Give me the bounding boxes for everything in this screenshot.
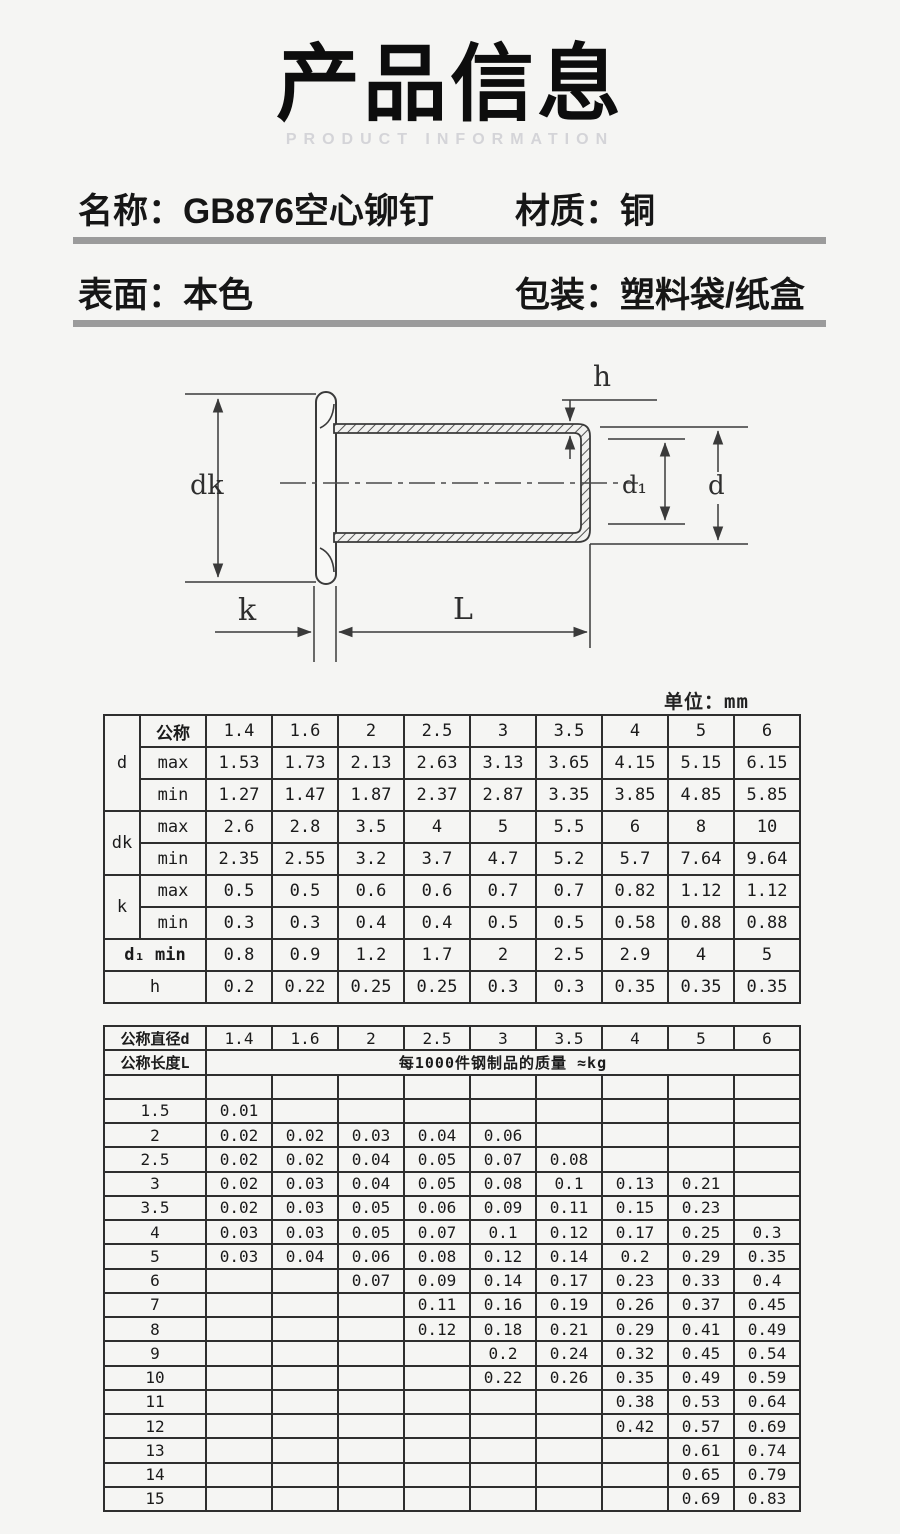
dim-value-cell: 1.27 (206, 779, 272, 811)
weight-length-cell: 2.5 (104, 1147, 206, 1171)
weight-value-cell (404, 1099, 470, 1123)
weight-value-cell: 0.13 (602, 1172, 668, 1196)
dim-value-cell: 0.58 (602, 907, 668, 939)
dim-value-cell: 0.5 (272, 875, 338, 907)
weight-value-cell (536, 1390, 602, 1414)
rivet-outline (316, 392, 590, 584)
weight-value-cell: 0.49 (668, 1366, 734, 1390)
weight-value-cell (338, 1293, 404, 1317)
weight-value-cell: 0.23 (668, 1196, 734, 1220)
weight-value-cell: 0.35 (734, 1244, 800, 1268)
dim-value-cell: 4.85 (668, 779, 734, 811)
dim-value-cell: 0.6 (404, 875, 470, 907)
weight-value-cell: 0.22 (470, 1366, 536, 1390)
weight-value-cell (206, 1414, 272, 1438)
dim-label-h: h (593, 360, 611, 393)
dim-value-cell: 0.2 (206, 971, 272, 1003)
dim-value-cell: 5 (734, 939, 800, 971)
weight-value-cell (734, 1075, 800, 1099)
dim-label-d1: d₁ (622, 471, 647, 499)
weight-value-cell: 0.25 (668, 1220, 734, 1244)
dim-sub-head: min (140, 779, 206, 811)
weight-value-cell: 0.1 (470, 1220, 536, 1244)
table-row: 80.120.180.210.290.410.49 (104, 1317, 800, 1341)
weight-value-cell (206, 1317, 272, 1341)
weight-value-cell (272, 1390, 338, 1414)
weight-value-cell (536, 1414, 602, 1438)
dim-value-cell: 1.87 (338, 779, 404, 811)
table-row: 100.220.260.350.490.59 (104, 1366, 800, 1390)
weight-value-cell: 0.11 (404, 1293, 470, 1317)
table-row: 110.380.530.64 (104, 1390, 800, 1414)
dim-value-cell: 3.5 (338, 811, 404, 843)
weight-value-cell (206, 1269, 272, 1293)
weight-length-cell: 1.5 (104, 1099, 206, 1123)
weight-value-cell (272, 1366, 338, 1390)
dimension-table-body: d公称1.41.622.533.5456max1.531.732.132.633… (104, 715, 800, 1003)
weight-value-cell: 0.03 (272, 1196, 338, 1220)
dim-value-cell: 2 (338, 715, 404, 747)
dim-sub-head: min (140, 907, 206, 939)
dim-value-cell: 5.15 (668, 747, 734, 779)
dimension-table: d公称1.41.622.533.5456max1.531.732.132.633… (103, 714, 801, 1004)
dim-value-cell: 1.53 (206, 747, 272, 779)
dim-value-cell: 5.7 (602, 843, 668, 875)
weight-value-cell (602, 1463, 668, 1487)
weight-value-cell (338, 1099, 404, 1123)
dim-value-cell: 3.13 (470, 747, 536, 779)
weight-diameter-cell: 5 (668, 1026, 734, 1050)
dim-value-cell: 3 (470, 715, 536, 747)
weight-value-cell: 0.05 (404, 1172, 470, 1196)
dim-value-cell: 2.6 (206, 811, 272, 843)
divider (73, 237, 826, 244)
weight-value-cell (734, 1123, 800, 1147)
weight-value-cell (206, 1463, 272, 1487)
weight-value-cell: 0.19 (536, 1293, 602, 1317)
weight-value-cell: 0.01 (206, 1099, 272, 1123)
weight-value-cell (404, 1075, 470, 1099)
weight-value-cell: 0.09 (404, 1269, 470, 1293)
weight-value-cell: 0.03 (272, 1172, 338, 1196)
dim-value-cell: 0.3 (206, 907, 272, 939)
weight-value-cell: 0.32 (602, 1341, 668, 1365)
weight-length-cell: 12 (104, 1414, 206, 1438)
weight-diameter-cell: 6 (734, 1026, 800, 1050)
dim-value-cell: 1.12 (668, 875, 734, 907)
dim-value-cell: 1.4 (206, 715, 272, 747)
weight-value-cell: 0.08 (470, 1172, 536, 1196)
dim-value-cell: 0.5 (536, 907, 602, 939)
weight-table-body: 公称直径d1.41.622.533.5456公称长度L每1000件钢制品的质量 … (104, 1026, 800, 1511)
dim-value-cell: 2.5 (536, 939, 602, 971)
weight-diameter-cell: 4 (602, 1026, 668, 1050)
weight-value-cell: 0.29 (602, 1317, 668, 1341)
dim-value-cell: 6 (602, 811, 668, 843)
weight-value-cell (206, 1293, 272, 1317)
weight-value-cell: 0.02 (206, 1147, 272, 1171)
dim-value-cell: 1.73 (272, 747, 338, 779)
weight-value-cell (338, 1438, 404, 1462)
dim-value-cell: 0.5 (206, 875, 272, 907)
unit-label: 单位：mm (664, 687, 749, 714)
weight-value-cell (206, 1390, 272, 1414)
weight-value-cell: 0.14 (470, 1269, 536, 1293)
weight-value-cell (602, 1147, 668, 1171)
dim-value-cell: 0.82 (602, 875, 668, 907)
weight-value-cell: 0.15 (602, 1196, 668, 1220)
weight-value-cell: 0.26 (536, 1366, 602, 1390)
weight-value-cell (272, 1487, 338, 1511)
product-packaging-value: 塑料袋/纸盒 (620, 276, 805, 315)
table-row: min1.271.471.872.372.873.353.854.855.85 (104, 779, 800, 811)
weight-value-cell: 0.02 (206, 1172, 272, 1196)
dim-value-cell: 2.13 (338, 747, 404, 779)
weight-length-cell: 13 (104, 1438, 206, 1462)
dim-sub-head: max (140, 875, 206, 907)
weight-value-cell (734, 1172, 800, 1196)
dim-value-cell: 0.7 (470, 875, 536, 907)
product-name-label: 名称： (78, 192, 183, 231)
dim-value-cell: 2.63 (404, 747, 470, 779)
dim-row-head: dk (104, 811, 140, 875)
weight-value-cell: 0.83 (734, 1487, 800, 1511)
dim-value-cell: 0.35 (668, 971, 734, 1003)
weight-value-cell: 0.02 (272, 1147, 338, 1171)
weight-value-cell (602, 1075, 668, 1099)
table-row: min2.352.553.23.74.75.25.77.649.64 (104, 843, 800, 875)
weight-diameter-cell: 2 (338, 1026, 404, 1050)
dim-value-cell: 7.64 (668, 843, 734, 875)
product-material: 材质：铜 (515, 183, 655, 234)
table-row: d₁ min0.80.91.21.722.52.945 (104, 939, 800, 971)
dim-value-cell: 0.35 (734, 971, 800, 1003)
weight-value-cell (602, 1438, 668, 1462)
weight-value-cell: 0.21 (668, 1172, 734, 1196)
dim-value-cell: 4 (404, 811, 470, 843)
dim-sub-head: min (140, 843, 206, 875)
weight-value-cell: 0.2 (602, 1244, 668, 1268)
weight-value-cell (272, 1463, 338, 1487)
weight-value-cell: 0.08 (536, 1147, 602, 1171)
weight-value-cell (272, 1414, 338, 1438)
weight-value-cell (602, 1099, 668, 1123)
product-material-label: 材质： (515, 192, 620, 231)
dim-value-cell: 0.3 (536, 971, 602, 1003)
dim-value-cell: 0.35 (602, 971, 668, 1003)
weight-value-cell: 0.07 (470, 1147, 536, 1171)
weight-value-cell: 0.04 (338, 1172, 404, 1196)
weight-value-cell (470, 1390, 536, 1414)
dim-value-cell: 10 (734, 811, 800, 843)
product-name-value: GB876空心铆钉 (183, 192, 434, 231)
weight-value-cell (470, 1099, 536, 1123)
weight-value-cell: 0.04 (272, 1244, 338, 1268)
weight-value-cell: 0.29 (668, 1244, 734, 1268)
dim-value-cell: 8 (668, 811, 734, 843)
weight-value-cell: 0.05 (338, 1220, 404, 1244)
table-row: min0.30.30.40.40.50.50.580.880.88 (104, 907, 800, 939)
weight-value-cell: 0.2 (470, 1341, 536, 1365)
weight-value-cell: 0.09 (470, 1196, 536, 1220)
table-row: d公称1.41.622.533.5456 (104, 715, 800, 747)
weight-length-cell: 2 (104, 1123, 206, 1147)
weight-diameter-cell: 2.5 (404, 1026, 470, 1050)
weight-value-cell: 0.04 (338, 1147, 404, 1171)
table-row: 2.50.020.020.040.050.070.08 (104, 1147, 800, 1171)
weight-value-cell: 0.07 (338, 1269, 404, 1293)
dim-row-head: k (104, 875, 140, 939)
weight-length-cell: 15 (104, 1487, 206, 1511)
dim-sub-head: max (140, 747, 206, 779)
dim-value-cell: 1.6 (272, 715, 338, 747)
weight-diameter-cell: 1.6 (272, 1026, 338, 1050)
weight-value-cell: 0.53 (668, 1390, 734, 1414)
weight-value-cell: 0.4 (734, 1269, 800, 1293)
weight-length-cell: 14 (104, 1463, 206, 1487)
weight-length-cell: 3 (104, 1172, 206, 1196)
weight-value-cell: 0.54 (734, 1341, 800, 1365)
dim-value-cell: 5 (668, 715, 734, 747)
dim-value-cell: 1.47 (272, 779, 338, 811)
weight-length-cell: 7 (104, 1293, 206, 1317)
weight-length-cell: 9 (104, 1341, 206, 1365)
weight-value-cell (536, 1123, 602, 1147)
weight-value-cell (338, 1075, 404, 1099)
table-row: 公称长度L每1000件钢制品的质量 ≈kg (104, 1050, 800, 1074)
weight-value-cell: 0.12 (404, 1317, 470, 1341)
weight-value-cell: 0.21 (536, 1317, 602, 1341)
table-row: h0.20.220.250.250.30.30.350.350.35 (104, 971, 800, 1003)
weight-value-cell (536, 1075, 602, 1099)
weight-value-cell (206, 1487, 272, 1511)
weight-value-cell: 0.69 (734, 1414, 800, 1438)
weight-length-cell: 4 (104, 1220, 206, 1244)
weight-value-cell: 0.04 (404, 1123, 470, 1147)
dim-value-cell: 0.5 (470, 907, 536, 939)
product-info-sheet: 产品信息 PRODUCT INFORMATION 名称：GB876空心铆钉 材质… (0, 0, 900, 1534)
dim-value-cell: 0.6 (338, 875, 404, 907)
dim-value-cell: 2.5 (404, 715, 470, 747)
weight-value-cell (206, 1341, 272, 1365)
weight-span-label: 每1000件钢制品的质量 ≈kg (206, 1050, 800, 1074)
weight-value-cell (470, 1075, 536, 1099)
table-row: 公称直径d1.41.622.533.5456 (104, 1026, 800, 1050)
weight-value-cell: 0.02 (206, 1123, 272, 1147)
dim-value-cell: 2.35 (206, 843, 272, 875)
weight-value-cell: 0.23 (602, 1269, 668, 1293)
weight-value-cell (338, 1463, 404, 1487)
weight-value-cell: 0.14 (536, 1244, 602, 1268)
table-row: 60.070.090.140.170.230.330.4 (104, 1269, 800, 1293)
weight-value-cell (404, 1438, 470, 1462)
dim-value-cell: 0.8 (206, 939, 272, 971)
dim-value-cell: 6 (734, 715, 800, 747)
weight-value-cell (272, 1293, 338, 1317)
weight-diameter-cell: 3 (470, 1026, 536, 1050)
weight-value-cell: 0.05 (338, 1196, 404, 1220)
dim-value-cell: 5 (470, 811, 536, 843)
weight-length-cell (104, 1075, 206, 1099)
dim-value-cell: 0.4 (338, 907, 404, 939)
table-row: 20.020.020.030.040.06 (104, 1123, 800, 1147)
weight-value-cell (404, 1341, 470, 1365)
weight-value-cell: 0.06 (338, 1244, 404, 1268)
weight-value-cell: 0.07 (404, 1220, 470, 1244)
rivet-head (316, 392, 336, 584)
page-subtitle: PRODUCT INFORMATION (0, 131, 900, 149)
table-row: dkmax2.62.83.5455.56810 (104, 811, 800, 843)
weight-value-cell (404, 1463, 470, 1487)
weight-value-cell (470, 1414, 536, 1438)
weight-value-cell: 0.38 (602, 1390, 668, 1414)
weight-length-cell: 3.5 (104, 1196, 206, 1220)
weight-value-cell: 0.17 (536, 1269, 602, 1293)
dim-value-cell: 0.88 (668, 907, 734, 939)
weight-value-cell: 0.69 (668, 1487, 734, 1511)
weight-value-cell (668, 1123, 734, 1147)
weight-value-cell (272, 1341, 338, 1365)
weight-value-cell (668, 1147, 734, 1171)
weight-value-cell: 0.06 (404, 1196, 470, 1220)
weight-value-cell: 0.24 (536, 1341, 602, 1365)
weight-value-cell: 0.33 (668, 1269, 734, 1293)
table-row: 130.610.74 (104, 1438, 800, 1462)
weight-length-cell: 5 (104, 1244, 206, 1268)
weight-value-cell (734, 1147, 800, 1171)
weight-value-cell: 0.03 (272, 1220, 338, 1244)
weight-value-cell: 0.1 (536, 1172, 602, 1196)
dim-label-k: k (238, 593, 257, 628)
product-surface-label: 表面： (78, 276, 183, 315)
weight-value-cell: 0.65 (668, 1463, 734, 1487)
weight-value-cell (734, 1099, 800, 1123)
weight-value-cell (338, 1341, 404, 1365)
dim-value-cell: 0.22 (272, 971, 338, 1003)
weight-value-cell: 0.74 (734, 1438, 800, 1462)
dim-value-cell: 1.12 (734, 875, 800, 907)
rivet-technical-drawing: dk k L h d₁ d (170, 352, 770, 682)
weight-value-cell: 0.45 (734, 1293, 800, 1317)
weight-value-cell (668, 1099, 734, 1123)
weight-diameter-cell: 1.4 (206, 1026, 272, 1050)
weight-value-cell (404, 1390, 470, 1414)
weight-length-cell: 6 (104, 1269, 206, 1293)
table-row (104, 1075, 800, 1099)
weight-value-cell (734, 1196, 800, 1220)
weight-value-cell: 0.18 (470, 1317, 536, 1341)
weight-value-cell: 0.64 (734, 1390, 800, 1414)
weight-value-cell: 0.06 (470, 1123, 536, 1147)
weight-value-cell (206, 1366, 272, 1390)
weight-value-cell (206, 1438, 272, 1462)
weight-value-cell (470, 1487, 536, 1511)
weight-value-cell (536, 1463, 602, 1487)
weight-value-cell: 0.16 (470, 1293, 536, 1317)
weight-value-cell: 0.37 (668, 1293, 734, 1317)
table-row: 90.20.240.320.450.54 (104, 1341, 800, 1365)
dim-value-cell: 0.7 (536, 875, 602, 907)
weight-length-cell: 11 (104, 1390, 206, 1414)
weight-length-cell: 10 (104, 1366, 206, 1390)
weight-value-cell (470, 1463, 536, 1487)
dim-label-dk: dk (190, 470, 224, 501)
product-surface: 表面：本色 (78, 267, 253, 318)
dim-value-cell: 4.15 (602, 747, 668, 779)
dim-label-L: L (453, 592, 473, 627)
dim-value-cell: 5.2 (536, 843, 602, 875)
weight-value-cell (404, 1414, 470, 1438)
weight-value-cell: 0.3 (734, 1220, 800, 1244)
table-row: max1.531.732.132.633.133.654.155.156.15 (104, 747, 800, 779)
weight-value-cell: 0.12 (470, 1244, 536, 1268)
weight-value-cell (338, 1366, 404, 1390)
table-row: 70.110.160.190.260.370.45 (104, 1293, 800, 1317)
product-material-value: 铜 (620, 192, 655, 231)
dim-value-cell: 0.3 (470, 971, 536, 1003)
weight-diameter-cell: 3.5 (536, 1026, 602, 1050)
weight-value-cell: 0.45 (668, 1341, 734, 1365)
weight-value-cell: 0.03 (338, 1123, 404, 1147)
weight-value-cell: 0.03 (206, 1244, 272, 1268)
dim-value-cell: 3.85 (602, 779, 668, 811)
product-packaging: 包装：塑料袋/纸盒 (515, 267, 805, 318)
weight-value-cell (668, 1075, 734, 1099)
page-title: 产品信息 (0, 38, 900, 130)
dim-row-head: d (104, 715, 140, 811)
dim-value-cell: 0.9 (272, 939, 338, 971)
weight-value-cell (272, 1438, 338, 1462)
dim-value-cell: 2.55 (272, 843, 338, 875)
dim-value-cell: 5.5 (536, 811, 602, 843)
weight-value-cell (206, 1075, 272, 1099)
weight-value-cell (602, 1123, 668, 1147)
dim-value-cell: 2.9 (602, 939, 668, 971)
weight-value-cell (338, 1317, 404, 1341)
weight-value-cell (470, 1438, 536, 1462)
weight-value-cell: 0.61 (668, 1438, 734, 1462)
weight-value-cell (272, 1099, 338, 1123)
weight-value-cell (272, 1317, 338, 1341)
weight-value-cell: 0.02 (272, 1123, 338, 1147)
dim-value-cell: 3.2 (338, 843, 404, 875)
table-row: 1.50.01 (104, 1099, 800, 1123)
weight-value-cell (536, 1099, 602, 1123)
dim-value-cell: 2.8 (272, 811, 338, 843)
weight-value-cell: 0.57 (668, 1414, 734, 1438)
weight-value-cell: 0.79 (734, 1463, 800, 1487)
weight-table: 公称直径d1.41.622.533.5456公称长度L每1000件钢制品的质量 … (103, 1025, 801, 1512)
dim-value-cell: 2 (470, 939, 536, 971)
weight-length-cell: 8 (104, 1317, 206, 1341)
dim-value-cell: 1.2 (338, 939, 404, 971)
dim-sub-head: max (140, 811, 206, 843)
product-surface-value: 本色 (183, 276, 253, 315)
dim-value-cell: 1.7 (404, 939, 470, 971)
weight-value-cell: 0.42 (602, 1414, 668, 1438)
divider (73, 320, 826, 327)
weight-value-cell (272, 1075, 338, 1099)
weight-value-cell (338, 1390, 404, 1414)
weight-value-cell: 0.41 (668, 1317, 734, 1341)
weight-value-cell: 0.35 (602, 1366, 668, 1390)
table-row: 40.030.030.050.070.10.120.170.250.3 (104, 1220, 800, 1244)
weight-value-cell: 0.08 (404, 1244, 470, 1268)
table-row: 50.030.040.060.080.120.140.20.290.35 (104, 1244, 800, 1268)
weight-value-cell: 0.17 (602, 1220, 668, 1244)
dim-value-cell: 4.7 (470, 843, 536, 875)
dim-value-cell: 3.7 (404, 843, 470, 875)
